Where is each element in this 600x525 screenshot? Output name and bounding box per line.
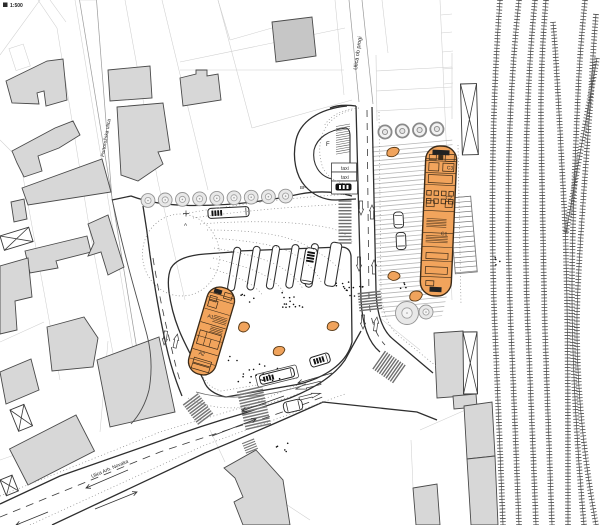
svg-text:C2: C2 (445, 195, 452, 201)
svg-text:C3: C3 (447, 165, 454, 171)
svg-text:C1: C1 (441, 231, 448, 237)
svg-text:A: A (184, 222, 187, 227)
svg-text:F: F (326, 142, 330, 148)
svg-text:1:500: 1:500 (10, 3, 23, 9)
svg-text:taxi: taxi (341, 166, 349, 172)
svg-text:taxi: taxi (341, 175, 349, 181)
svg-text:BP: BP (300, 185, 306, 190)
